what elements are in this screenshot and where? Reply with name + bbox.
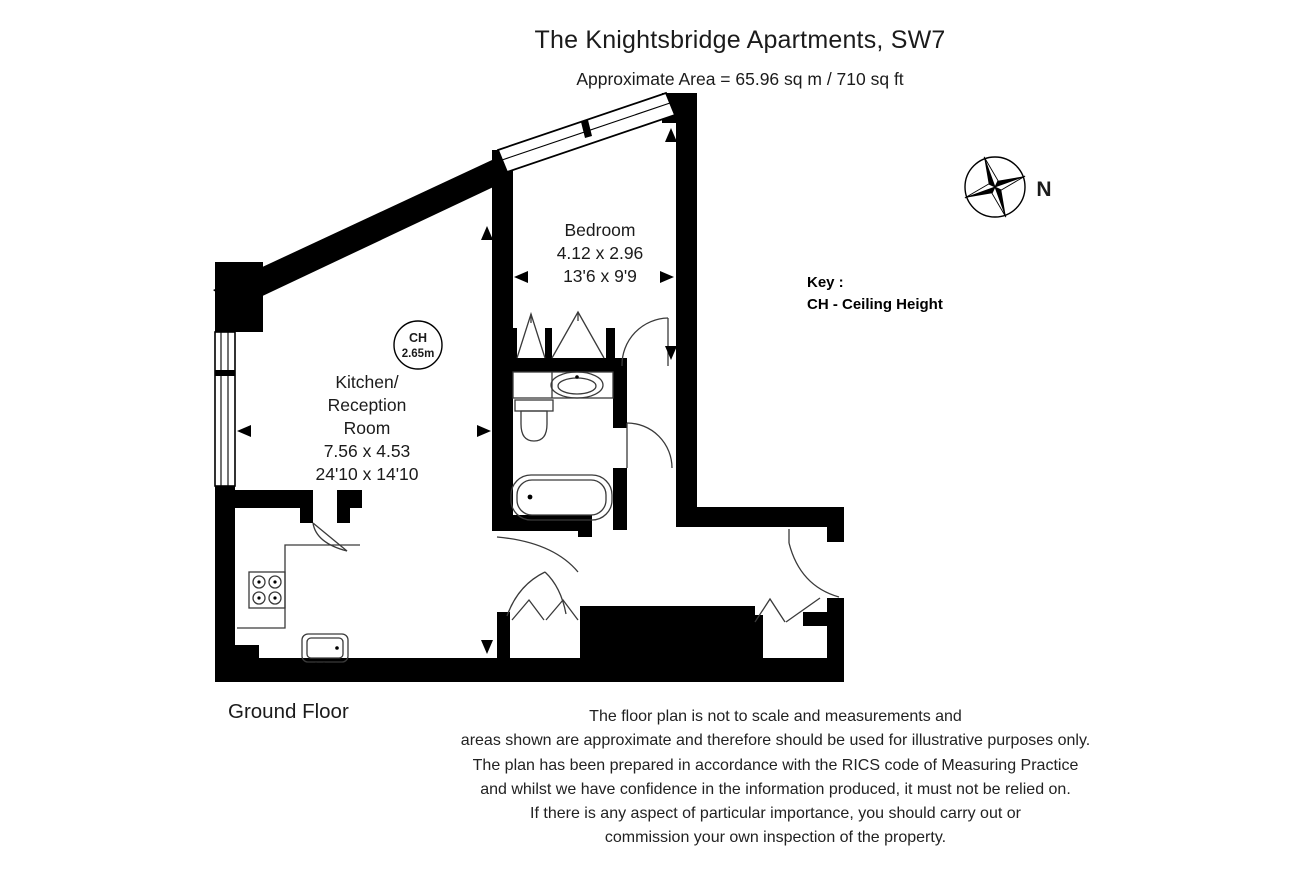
wall [578, 515, 592, 537]
kitchen-imperial-dims: 24'10 x 14'10 [315, 464, 418, 484]
wall [235, 490, 302, 508]
arrow-right-icon [477, 425, 491, 437]
wardrobe-doors [517, 312, 604, 358]
floorplan-drawing: Bedroom 4.12 x 2.96 13'6 x 9'9 Kitchen/ … [0, 0, 1302, 893]
wall [827, 507, 844, 542]
wall [215, 486, 235, 682]
arrow-left-icon [237, 425, 251, 437]
bedroom-imperial-dims: 13'6 x 9'9 [563, 266, 637, 286]
floorplan-page: The Knightsbridge Apartments, SW7 Approx… [0, 0, 1302, 893]
wall [676, 105, 697, 527]
compass-north-label: N [1036, 178, 1051, 201]
wall [606, 328, 615, 358]
windows [215, 93, 675, 486]
arrow-up-icon [481, 226, 493, 240]
room-labels: Bedroom 4.12 x 2.96 13'6 x 9'9 Kitchen/ … [315, 220, 643, 484]
wall-diagonal [213, 160, 504, 308]
arrow-down-icon [481, 640, 493, 654]
kitchen-name-line2: Reception [328, 395, 407, 415]
ceiling-height-badge: CH 2.65m [394, 321, 442, 369]
wall [803, 612, 827, 626]
closet-left-bifold-doors [512, 600, 578, 620]
wall [348, 490, 362, 508]
bedroom-name: Bedroom [564, 220, 635, 240]
ceiling-height-value: 2.65m [402, 348, 435, 360]
bedroom-metric-dims: 4.12 x 2.96 [557, 243, 644, 263]
walls [213, 93, 844, 682]
wall [545, 328, 552, 358]
window-bedroom [498, 93, 675, 172]
wall [827, 598, 844, 680]
wall [300, 490, 313, 523]
window-kitchen [215, 332, 235, 486]
bathroom-sink-icon [513, 372, 613, 398]
bathtub-icon [511, 475, 612, 520]
kitchen-metric-dims: 7.56 x 4.53 [324, 441, 411, 461]
kitchen-name-line1: Kitchen/ [335, 372, 398, 392]
compass-icon: N [965, 157, 1052, 217]
arrow-up-icon [665, 128, 677, 142]
arrow-left-icon [514, 271, 528, 283]
hob-icon [249, 572, 285, 608]
kitchen-nook-door [313, 523, 347, 551]
ceiling-height-label: CH [409, 331, 427, 345]
toilet-icon [515, 400, 553, 441]
wall [235, 645, 259, 660]
measurement-arrows [237, 128, 677, 654]
arrow-down-icon [665, 346, 677, 360]
wall [676, 507, 844, 527]
kitchen-name-line3: Room [344, 418, 391, 438]
bathroom-door [627, 423, 672, 468]
wall [497, 612, 510, 658]
wall [508, 328, 517, 358]
wall [750, 615, 763, 658]
wall [492, 358, 615, 372]
wall-column [580, 606, 755, 658]
bedroom-door [622, 318, 668, 366]
wall [492, 515, 592, 531]
arrow-right-icon [660, 271, 674, 283]
wall [613, 468, 627, 530]
wall [613, 358, 627, 428]
